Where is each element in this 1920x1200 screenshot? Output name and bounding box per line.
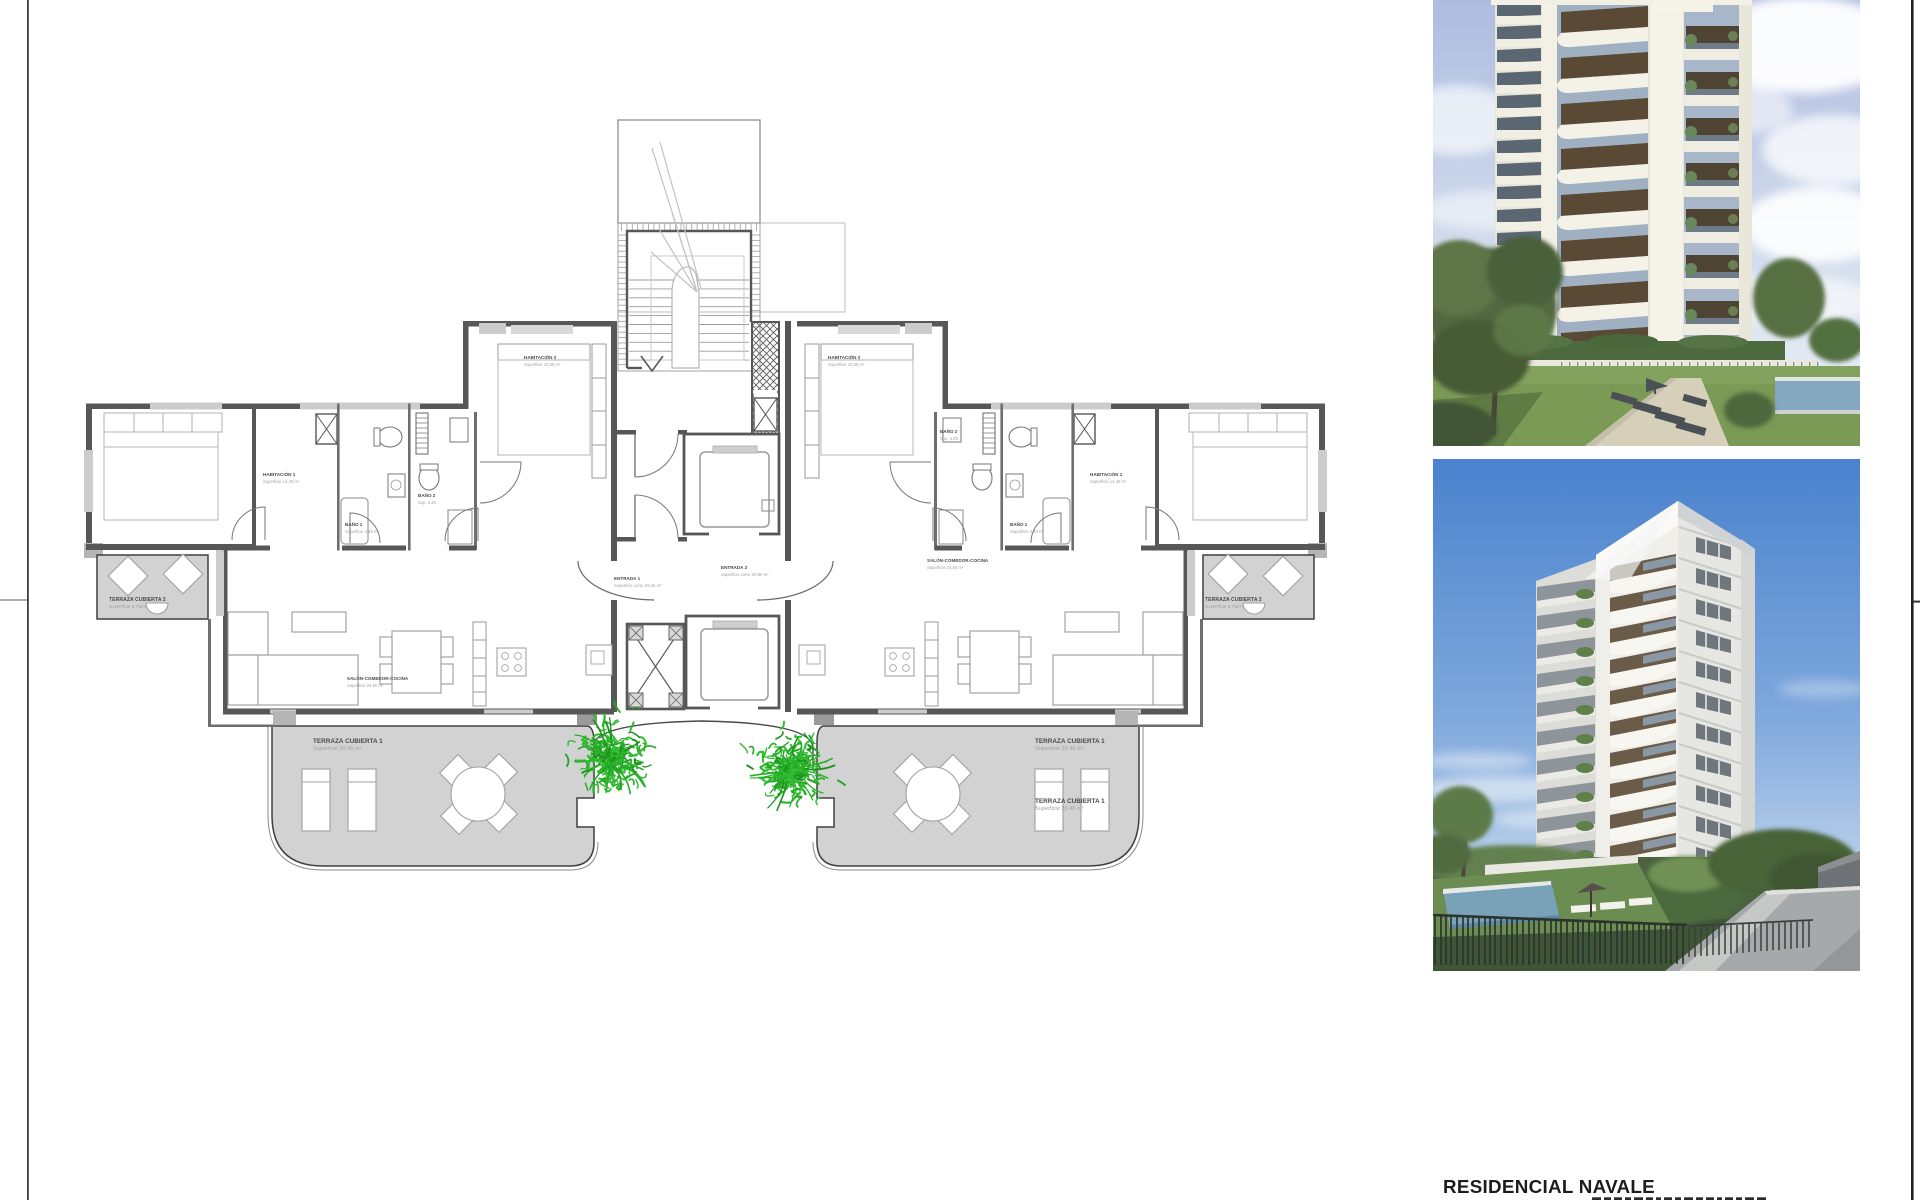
svg-text:Superficie 20.46 m²: Superficie 20.46 m² <box>1035 746 1084 752</box>
svg-text:Superficie cons. 93.80 m²: Superficie cons. 93.80 m² <box>721 572 769 577</box>
svg-text:BAÑO 1: BAÑO 1 <box>1010 521 1028 527</box>
svg-text:Superficie 14.40 m²: Superficie 14.40 m² <box>1090 479 1127 484</box>
svg-text:HABITACIÓN 1: HABITACIÓN 1 <box>263 470 296 477</box>
svg-text:TERRAZA CUBIERTA 2: TERRAZA CUBIERTA 2 <box>1205 597 1262 603</box>
svg-text:HABITACIÓN 1: HABITACIÓN 1 <box>1090 470 1123 477</box>
svg-text:BAÑO 1: BAÑO 1 <box>345 521 363 527</box>
svg-text:ENTRADA 1: ENTRADA 1 <box>614 576 641 581</box>
svg-text:ENTRADA 2: ENTRADA 2 <box>721 565 748 570</box>
svg-text:SALÓN-COMEDOR-COCINA: SALÓN-COMEDOR-COCINA <box>347 674 409 681</box>
svg-text:Superficie 5.76m²: Superficie 5.76m² <box>109 604 147 610</box>
svg-text:Superficie 24.60 m²: Superficie 24.60 m² <box>927 565 964 570</box>
svg-text:Superficie 20.46 m²: Superficie 20.46 m² <box>1035 806 1084 812</box>
svg-text:BAÑO 2: BAÑO 2 <box>940 428 958 434</box>
svg-text:Superficie 4.40 m²: Superficie 4.40 m² <box>1010 529 1045 534</box>
svg-text:BAÑO 2: BAÑO 2 <box>418 492 436 498</box>
svg-text:SALÓN-COMEDOR-COCINA: SALÓN-COMEDOR-COCINA <box>927 556 989 563</box>
svg-text:TERRAZA CUBIERTA 1: TERRAZA CUBIERTA 1 <box>313 738 383 745</box>
svg-text:HABITACIÓN 2: HABITACIÓN 2 <box>524 353 557 360</box>
svg-text:HABITACIÓN 2: HABITACIÓN 2 <box>828 353 861 360</box>
svg-text:Sup. 4.20: Sup. 4.20 <box>940 436 959 441</box>
svg-text:Superficie 12.05 m²: Superficie 12.05 m² <box>524 362 561 367</box>
svg-text:Superficie 24.60 m²: Superficie 24.60 m² <box>347 683 384 688</box>
svg-text:TERRAZA CUBIERTA 2: TERRAZA CUBIERTA 2 <box>109 597 166 603</box>
svg-text:TERRAZA CUBIERTA 1: TERRAZA CUBIERTA 1 <box>1035 798 1105 805</box>
svg-text:RESIDENCIAL NAVALE: RESIDENCIAL NAVALE <box>1443 1176 1655 1197</box>
svg-text:TERRAZA CUBIERTA 1: TERRAZA CUBIERTA 1 <box>1035 738 1105 745</box>
svg-text:Superficie 4.40 m²: Superficie 4.40 m² <box>345 529 380 534</box>
svg-text:Superficie 20.46 m²: Superficie 20.46 m² <box>313 746 362 752</box>
svg-text:Superficie 12.05 m²: Superficie 12.05 m² <box>828 362 865 367</box>
svg-text:Superficie cons. 93.26 m²: Superficie cons. 93.26 m² <box>614 583 662 588</box>
svg-text:Superficie 14.40 m²: Superficie 14.40 m² <box>263 479 300 484</box>
svg-text:Superficie 5.76m²: Superficie 5.76m² <box>1205 604 1243 610</box>
svg-text:Sup. 4.20: Sup. 4.20 <box>418 500 437 505</box>
